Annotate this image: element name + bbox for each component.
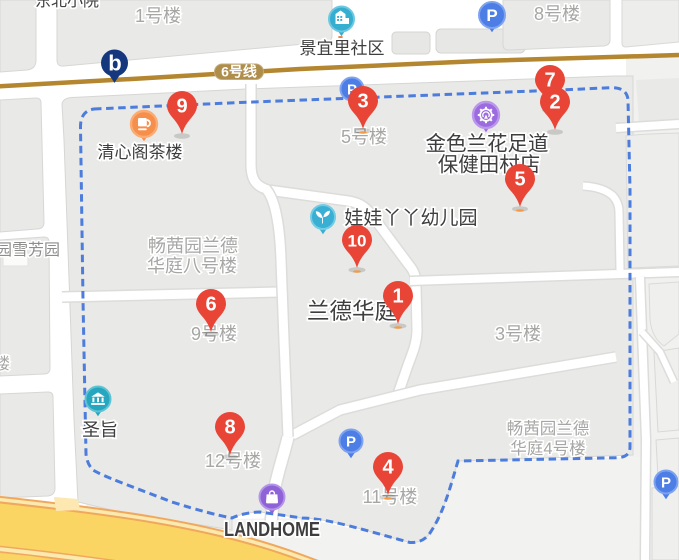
svg-text:6: 6 — [205, 294, 216, 316]
svg-text:LANDHOME: LANDHOME — [224, 518, 320, 541]
svg-text:P: P — [486, 6, 497, 25]
svg-text:1号楼: 1号楼 — [135, 6, 181, 26]
svg-text:娃娃丫丫幼儿园: 娃娃丫丫幼儿园 — [344, 207, 477, 229]
svg-text:华庭八号楼: 华庭八号楼 — [147, 256, 237, 276]
svg-text:清心阁茶楼: 清心阁茶楼 — [98, 143, 183, 162]
svg-text:畅茜园兰德: 畅茜园兰德 — [148, 236, 238, 256]
svg-text:兰德华庭: 兰德华庭 — [307, 299, 397, 324]
svg-text:圣旨: 圣旨 — [82, 420, 118, 440]
svg-text:华庭4号楼: 华庭4号楼 — [510, 439, 585, 458]
svg-text:楼: 楼 — [0, 355, 10, 373]
svg-text:12号楼: 12号楼 — [205, 451, 261, 471]
svg-text:6号线: 6号线 — [221, 64, 257, 80]
svg-text:金色兰花足道: 金色兰花足道 — [426, 133, 549, 156]
svg-text:东北小院: 东北小院 — [35, 0, 99, 10]
svg-text:景宜里社区: 景宜里社区 — [300, 39, 385, 58]
svg-text:2: 2 — [549, 92, 560, 114]
svg-text:3: 3 — [357, 91, 368, 113]
svg-text:畅茜园兰德: 畅茜园兰德 — [507, 419, 590, 438]
svg-text:b: b — [108, 51, 121, 76]
svg-text:5: 5 — [514, 169, 525, 191]
svg-text:9: 9 — [176, 96, 187, 118]
svg-text:8号楼: 8号楼 — [534, 4, 580, 24]
svg-text:10: 10 — [348, 232, 367, 251]
svg-text:P: P — [661, 475, 671, 492]
svg-text:3号楼: 3号楼 — [495, 324, 541, 344]
svg-text:P: P — [346, 434, 356, 451]
svg-text:园雪芳园: 园雪芳园 — [0, 241, 60, 259]
svg-text:1: 1 — [392, 286, 403, 308]
svg-text:4: 4 — [382, 457, 394, 479]
svg-text:8: 8 — [224, 417, 235, 439]
